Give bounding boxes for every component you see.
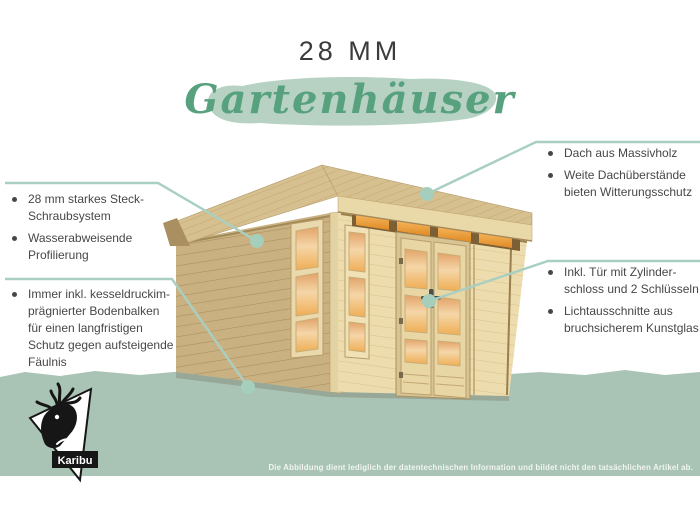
callout-left-top: 28 mm starkes Steck- Schraubsystem Wasse… xyxy=(9,191,177,264)
callout-right-top: Dach aus Massivholz Weite Dachüberstände… xyxy=(545,145,700,201)
door-right-leaf xyxy=(434,242,466,398)
callout-left-bottom-list: Immer inkl. kesseldruckim- prägnierter B… xyxy=(9,286,193,371)
callout-right-middle: Inkl. Tür mit Zylinder- schloss und 2 Sc… xyxy=(545,264,700,337)
logo-brand-text: Karibu xyxy=(58,455,93,467)
callout-left-top-list: 28 mm starkes Steck- Schraubsystem Wasse… xyxy=(9,191,177,264)
leader-dot-left-top xyxy=(250,234,264,248)
callout-item: Lichtausschnitte aus bruchsicherem Kunst… xyxy=(545,303,700,337)
callout-right-top-list: Dach aus Massivholz Weite Dachüberstände… xyxy=(545,145,700,201)
leader-dot-left-bottom xyxy=(241,380,255,394)
callout-item: Immer inkl. kesseldruckim- prägnierter B… xyxy=(9,286,193,371)
callout-item: Inkl. Tür mit Zylinder- schloss und 2 Sc… xyxy=(545,264,700,298)
disclaimer-text: Die Abbildung dient lediglich der datent… xyxy=(268,463,693,472)
leader-dot-right-top xyxy=(420,187,434,201)
double-door xyxy=(396,232,470,399)
callout-right-middle-list: Inkl. Tür mit Zylinder- schloss und 2 Sc… xyxy=(545,264,700,337)
callout-item: Wasserabweisende Profilierung xyxy=(9,230,177,264)
callout-left-bottom: Immer inkl. kesseldruckim- prägnierter B… xyxy=(9,286,193,371)
front-wall-window xyxy=(345,225,369,359)
left-wall-window xyxy=(291,219,323,358)
garden-house xyxy=(163,165,532,401)
callout-item: Dach aus Massivholz xyxy=(545,145,700,162)
door-left-leaf xyxy=(399,238,431,395)
leader-dot-right-middle xyxy=(422,294,436,308)
callout-item: Weite Dachüberstände bieten Witterungssc… xyxy=(545,167,700,201)
page: 28 MM Gartenhäuser xyxy=(0,0,700,525)
callout-item: 28 mm starkes Steck- Schraubsystem xyxy=(9,191,177,225)
